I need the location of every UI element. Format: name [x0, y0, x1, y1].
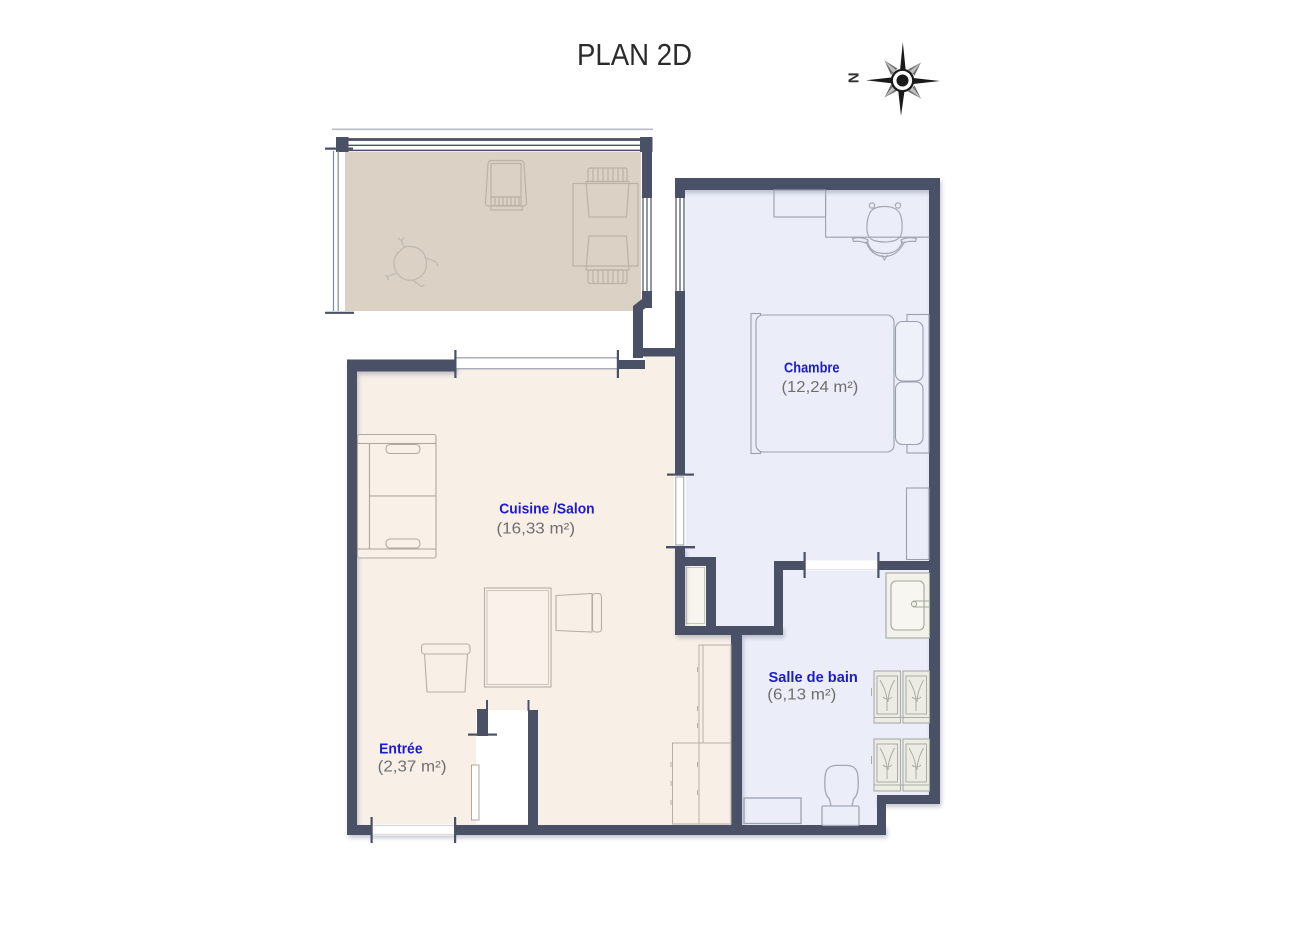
svg-text:PLAN 2D: PLAN 2D: [577, 37, 692, 72]
svg-text:(12,24 m²): (12,24 m²): [782, 379, 859, 396]
svg-text:(6,13 m²): (6,13 m²): [767, 687, 836, 704]
svg-text:(16,33 m²): (16,33 m²): [497, 521, 576, 538]
svg-text:Cuisine /Salon: Cuisine /Salon: [499, 501, 594, 518]
svg-text:Entrée: Entrée: [379, 741, 423, 758]
svg-text:Chambre: Chambre: [784, 360, 840, 377]
svg-text:(2,37 m²): (2,37 m²): [378, 759, 447, 776]
svg-text:Salle de bain: Salle de bain: [769, 669, 858, 686]
svg-text:N: N: [846, 72, 863, 83]
